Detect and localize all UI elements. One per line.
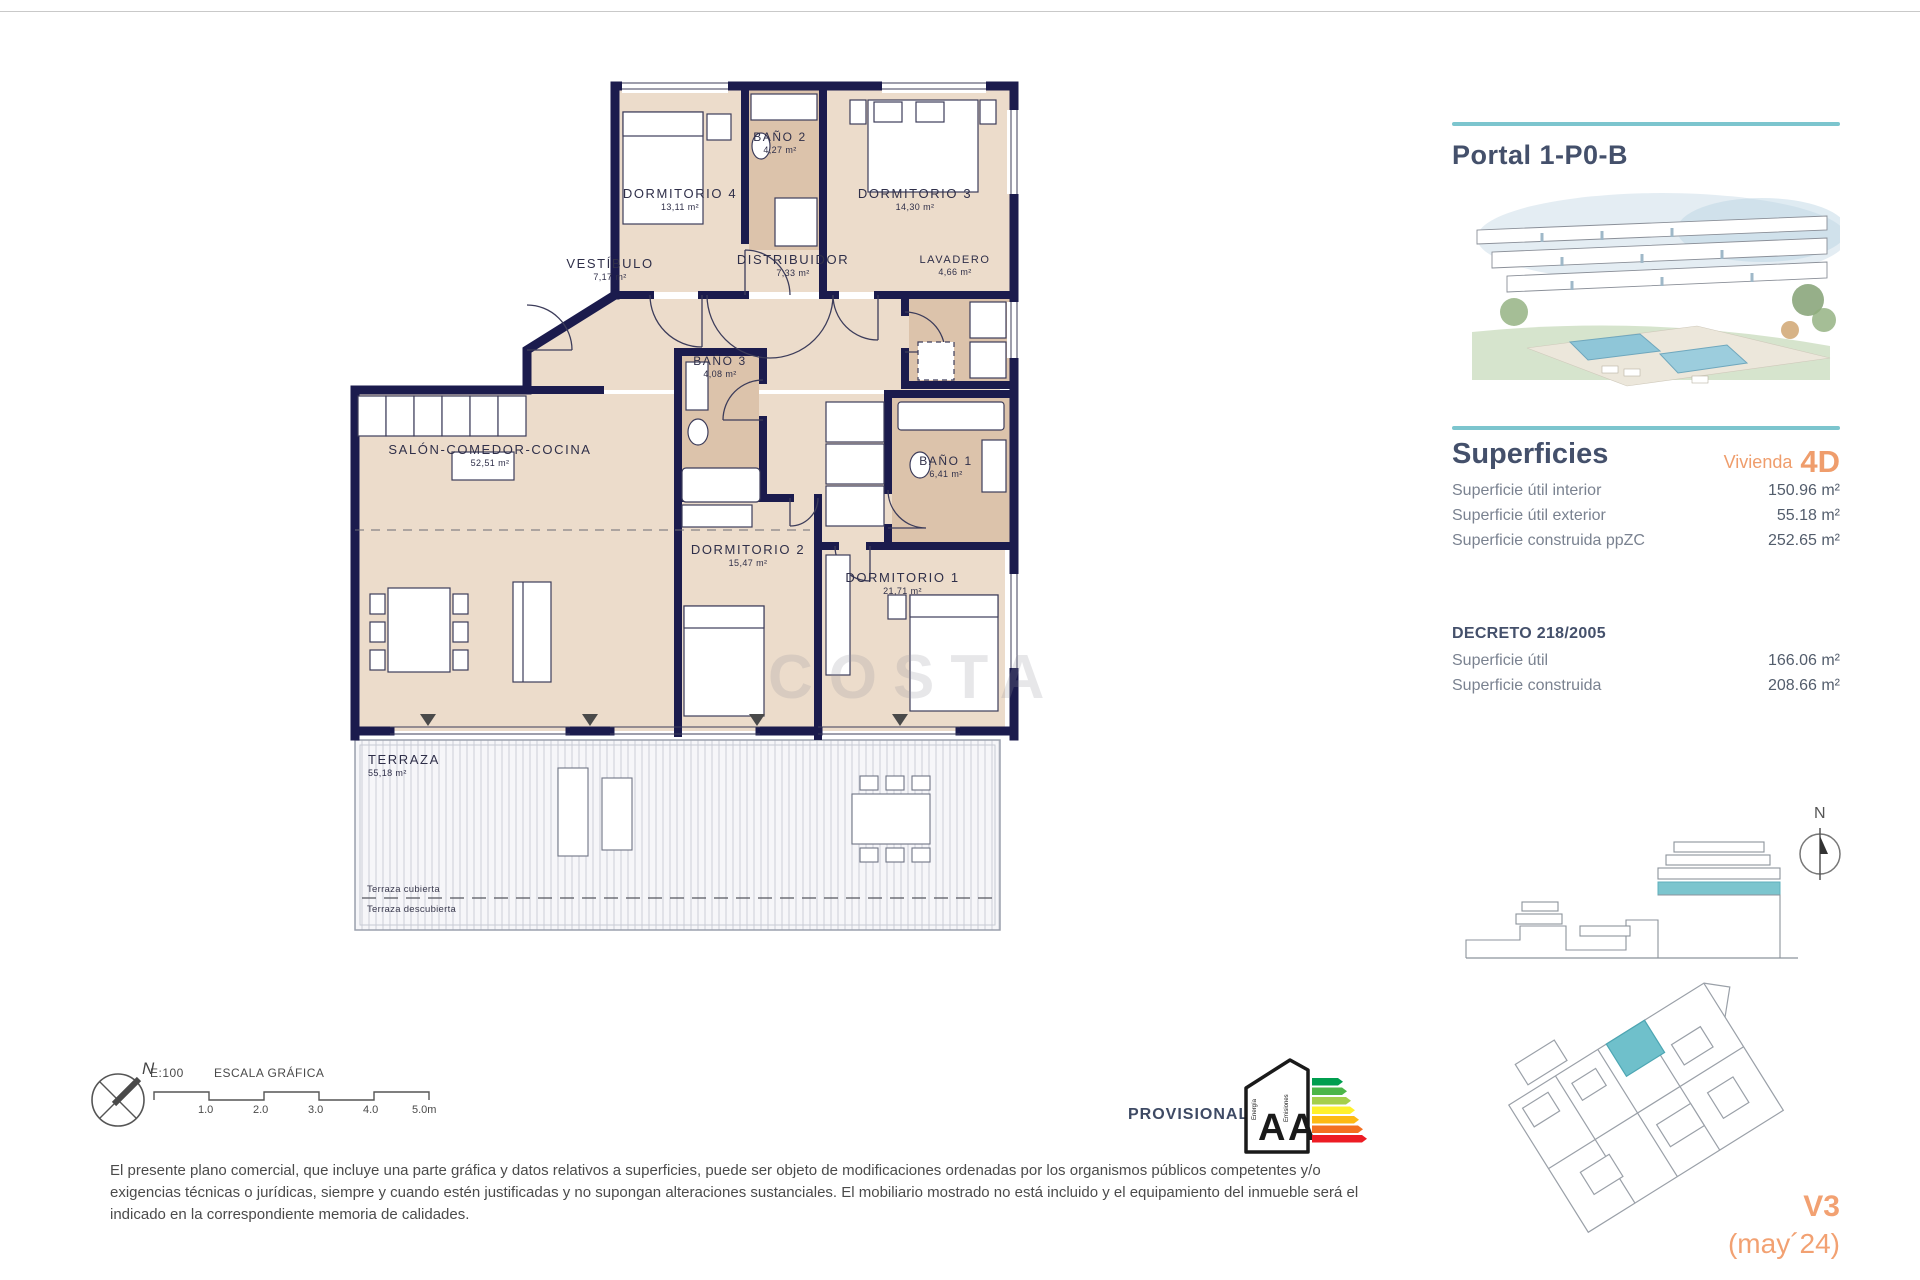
surface-row: Superficie útil interior150.96 m²	[1452, 482, 1840, 507]
scale-bar: E:100 ESCALA GRÁFICA 1.0 2.0 3.0 4.0 5.0…	[150, 1058, 470, 1128]
vivienda-badge: Vivienda4D	[1724, 444, 1840, 480]
decreto-heading: DECRETO 218/2005	[1452, 625, 1606, 643]
floor-plan	[270, 50, 1030, 940]
sidebar-top-rule	[1452, 122, 1840, 126]
unit-title: Portal 1-P0-B	[1452, 140, 1840, 171]
floor-plan-drawing	[270, 50, 1030, 940]
provisional-label: PROVISIONAL	[1128, 1106, 1228, 1124]
surface-row: Superficie útil exterior55.18 m²	[1452, 507, 1840, 532]
svg-text:A: A	[1288, 1107, 1315, 1149]
superficies-heading: Superficies	[1452, 438, 1608, 471]
superficies-section: Superficies Vivienda4D	[1452, 438, 1840, 471]
energy-arrows	[1312, 1078, 1367, 1143]
surface-row: Superficie construida ppZC252.65 m²	[1452, 532, 1840, 557]
top-divider	[0, 11, 1920, 12]
svg-text:A: A	[1258, 1107, 1285, 1149]
site-plan-diagram	[1495, 978, 1795, 1236]
floor-plan-sheet: { "plan": { "rooms": [ {"name":"DORMITOR…	[0, 0, 1920, 1280]
surface-row: Superficie útil166.06 m²	[1452, 652, 1840, 677]
superficies-rows: Superficie útil interior150.96 m² Superf…	[1452, 482, 1840, 557]
svg-text:N: N	[1814, 805, 1826, 822]
surface-row: Superficie construida208.66 m²	[1452, 677, 1840, 702]
plan-version: V3	[1803, 1190, 1840, 1224]
plan-date: (may´24)	[1728, 1228, 1840, 1260]
scale-title: ESCALA GRÁFICA	[214, 1066, 324, 1080]
highlighted-floor	[1658, 882, 1780, 895]
disclaimer-text: El presente plano comercial, que incluye…	[110, 1160, 1378, 1225]
building-illustration	[1452, 180, 1840, 422]
sidebar-mid-rule	[1452, 426, 1840, 430]
site-section-diagram	[1458, 808, 1803, 970]
scale-bar-rule	[152, 1086, 442, 1104]
decreto-rows: Superficie útil166.06 m² Superficie cons…	[1452, 652, 1840, 702]
energy-rating-icon: Energía A Emisiones A	[1232, 1048, 1372, 1160]
scale-ratio: E:100	[150, 1066, 184, 1080]
